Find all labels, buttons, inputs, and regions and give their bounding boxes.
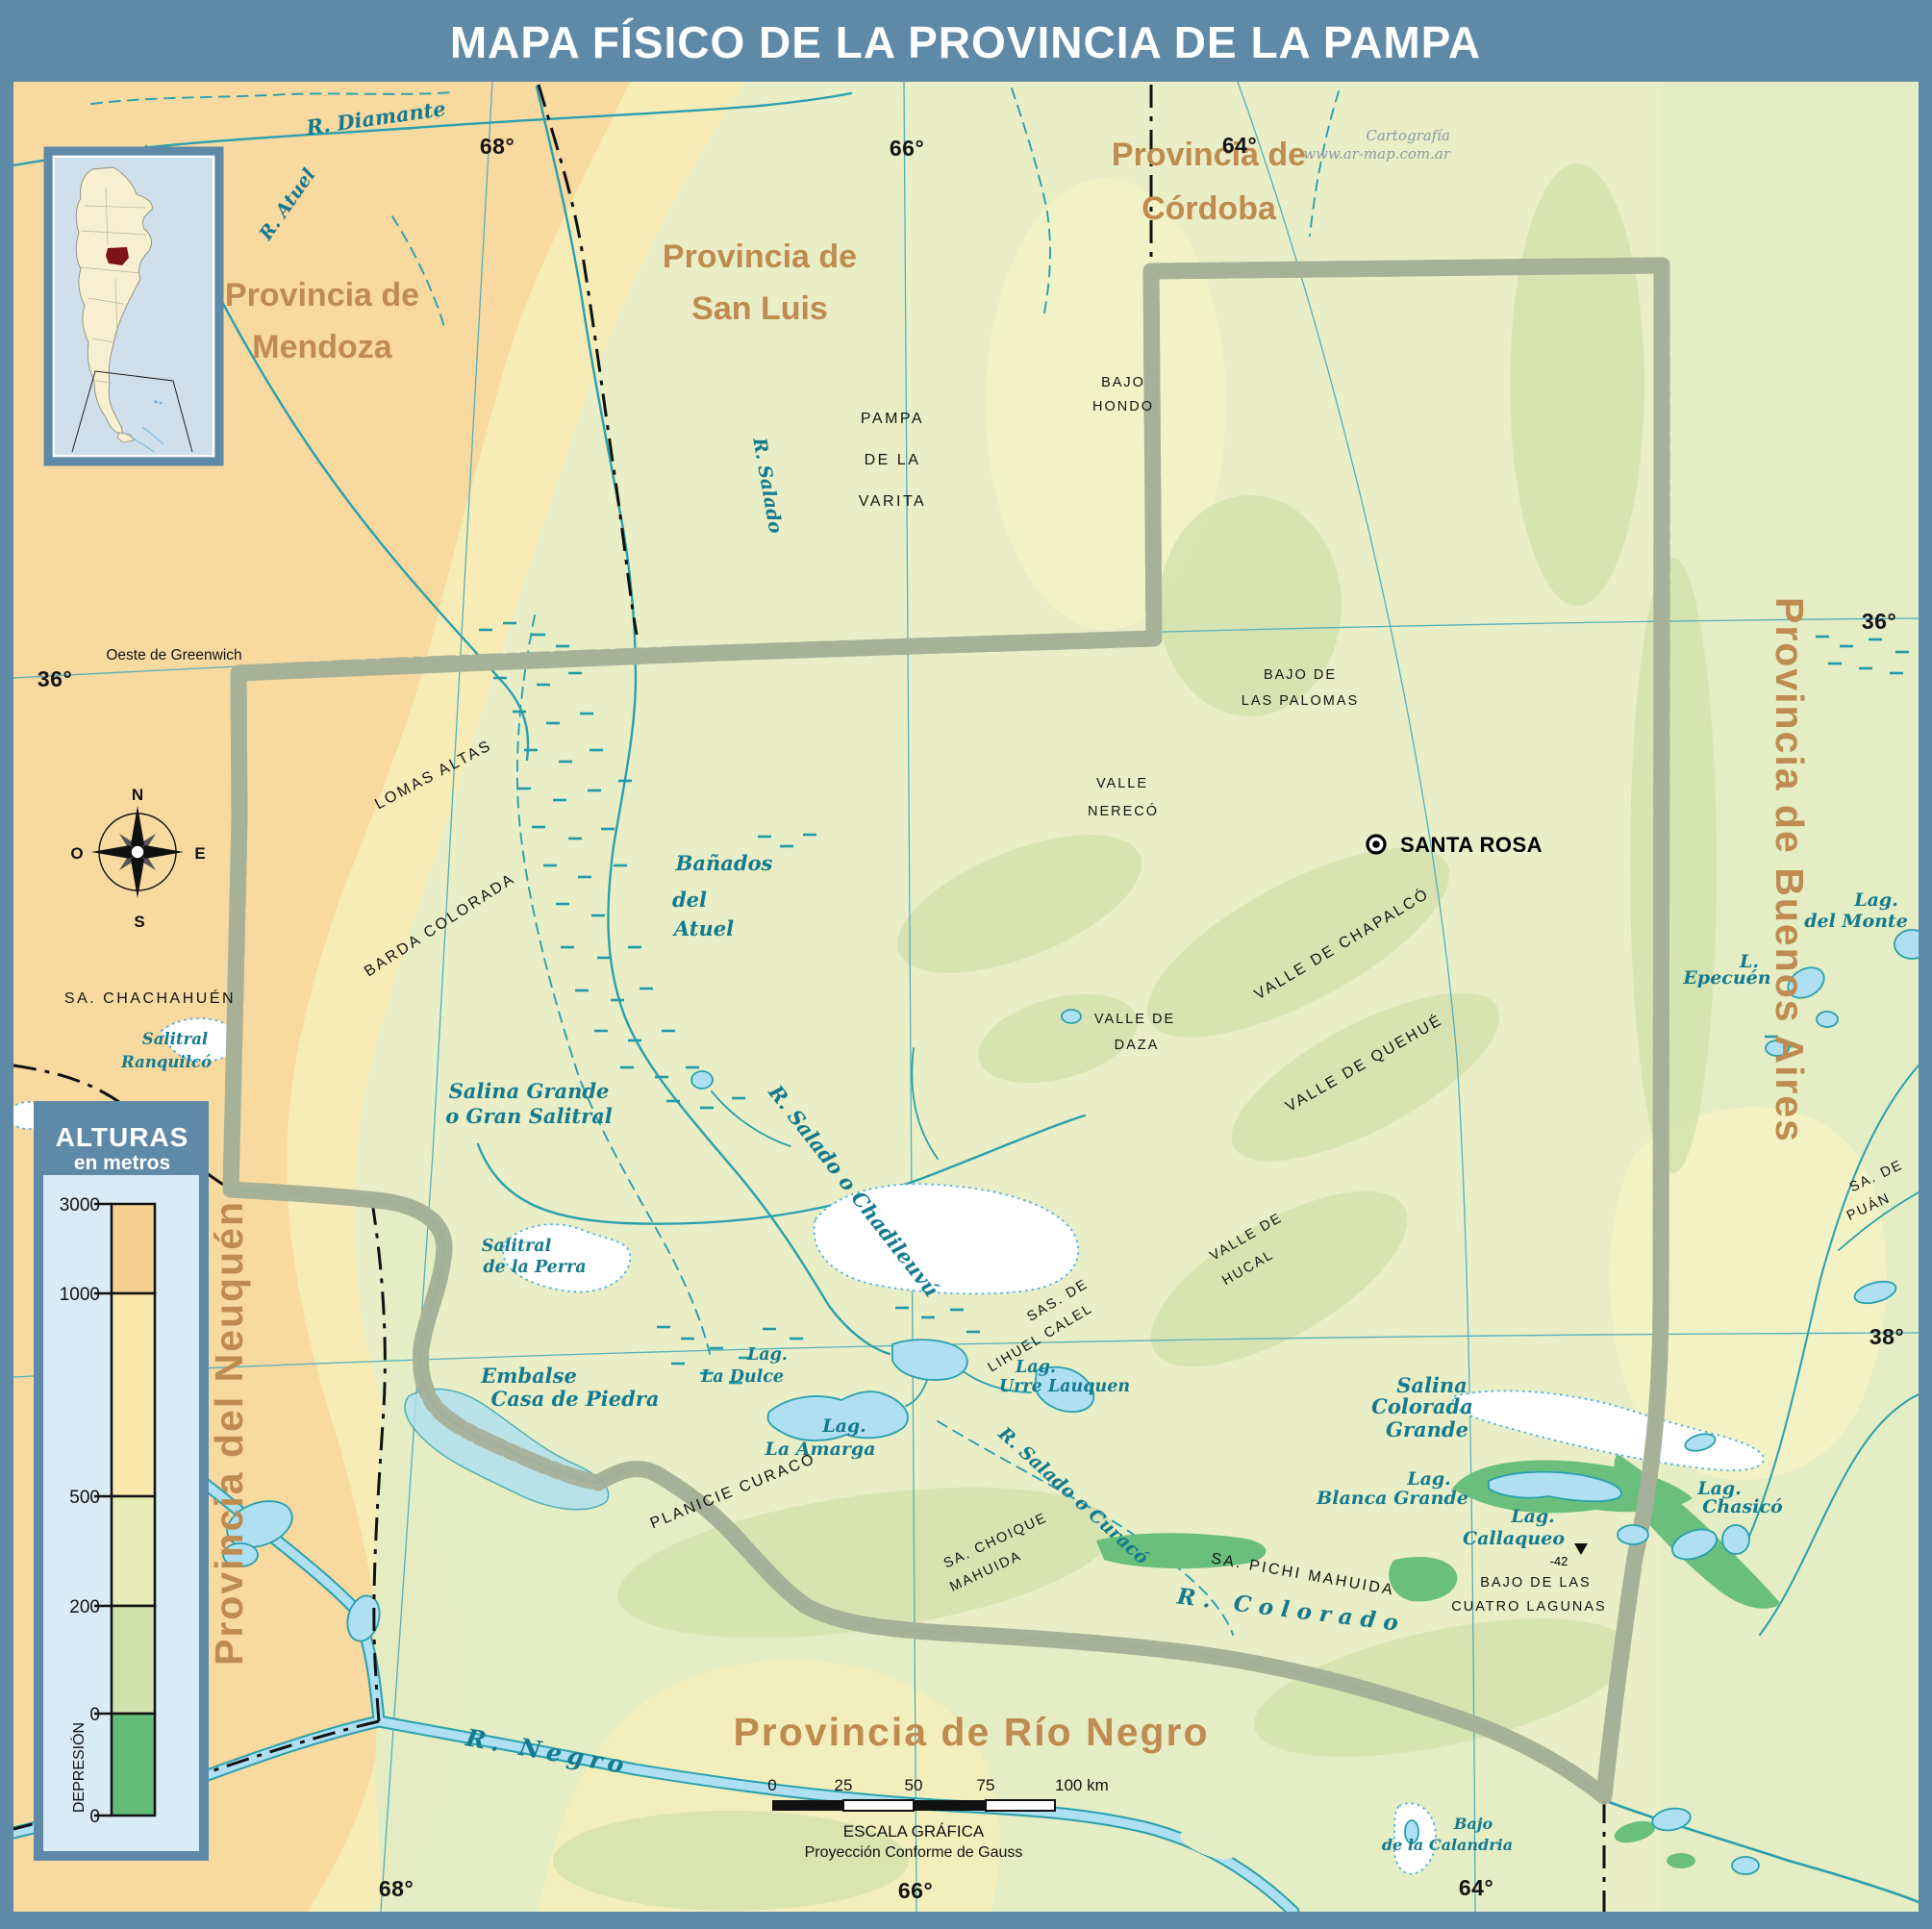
label-banados-2: del xyxy=(672,888,707,912)
label-embalse-1: Embalse xyxy=(480,1364,577,1388)
legend-tick-500: 500 xyxy=(69,1488,100,1508)
label-palomas-2: LAS PALOMAS xyxy=(1242,693,1359,709)
label-nereco-2: NERECÓ xyxy=(1088,803,1159,819)
map-title: MAPA FÍSICO DE LA PROVINCIA DE LA PAMPA xyxy=(450,17,1481,67)
inset-map xyxy=(48,151,219,462)
label-sanluis-2: San Luis xyxy=(691,290,828,327)
deg-66-top: 66° xyxy=(890,136,924,161)
label-nereco-1: VALLE xyxy=(1096,776,1148,791)
legend-tick-0a: 0 xyxy=(89,1705,100,1725)
scale-75: 75 xyxy=(977,1776,995,1794)
legend-tick-0b: 0 xyxy=(89,1807,100,1827)
label-calandria-1: Bajo xyxy=(1453,1815,1493,1833)
legend-tick-200: 200 xyxy=(69,1597,100,1617)
label-embalse-2: Casa de Piedra xyxy=(491,1387,660,1411)
deg-68-bottom: 68° xyxy=(379,1876,414,1901)
deg-66-bottom: 66° xyxy=(898,1878,933,1903)
label-monte-1: Lag. xyxy=(1853,889,1898,911)
label-calandria-2: de la Calandria xyxy=(1382,1836,1513,1854)
label-blanca-1: Lag. xyxy=(1406,1468,1451,1490)
label-chasico-2: Chasicó xyxy=(1702,1496,1783,1517)
deg-36-right: 36° xyxy=(1862,609,1896,634)
label-perra-1: Salitral xyxy=(482,1237,552,1256)
label-urre-1: Lag. xyxy=(1015,1358,1056,1377)
label-cordoba-2: Córdoba xyxy=(1142,190,1277,227)
label-salina-grande-2: o Gran Salitral xyxy=(445,1104,613,1128)
label-chachahuen: SA. CHACHAHUÉN xyxy=(64,989,236,1007)
label-amarga-1: Lag. xyxy=(821,1415,866,1437)
label-mendoza-1: Provincia de xyxy=(225,277,419,313)
label-blanca-2: Blanca Grande xyxy=(1316,1488,1468,1509)
lag-daza xyxy=(1062,1010,1081,1023)
compass-o: O xyxy=(70,844,83,863)
label-greenwich: Oeste de Greenwich xyxy=(106,647,241,664)
label-epecuen-2: Epecuén xyxy=(1682,967,1770,989)
label-scolorada-2: Colorada xyxy=(1371,1394,1473,1418)
label-bajo-hondo-1: BAJO xyxy=(1101,375,1145,390)
lag-chasico xyxy=(1722,1525,1749,1554)
label-neuquen: Provincia del Neuquén xyxy=(207,1200,251,1666)
label-depression-value: -42 xyxy=(1550,1554,1568,1568)
compass-s: S xyxy=(134,913,144,931)
label-callaqueo-2: Callaqueo xyxy=(1463,1528,1565,1549)
scale-25: 25 xyxy=(835,1776,853,1794)
legend-tick-1000: 1000 xyxy=(60,1285,100,1305)
label-scolorada-3: Grande xyxy=(1386,1417,1468,1441)
label-dulce-1: Lag. xyxy=(746,1345,788,1365)
deg-64-bottom: 64° xyxy=(1459,1875,1493,1900)
santa-rosa-marker xyxy=(1367,836,1385,853)
label-cordoba-1: Provincia de xyxy=(1112,137,1306,173)
scale-title: ESCALA GRÁFICA xyxy=(843,1822,985,1841)
label-rionegro: Provincia de Río Negro xyxy=(733,1710,1209,1754)
label-palomas-1: BAJO DE xyxy=(1264,667,1337,683)
map-page: MAPA FÍSICO DE LA PROVINCIA DE LA PAMPA … xyxy=(0,0,1932,1929)
scale-0: 0 xyxy=(767,1776,776,1794)
deg-64-top: 64° xyxy=(1222,133,1257,158)
label-pampa-varita-2: DE LA xyxy=(865,452,921,468)
deg-38-right: 38° xyxy=(1869,1324,1904,1349)
credit-line2: www.ar-map.com.ar xyxy=(1303,145,1451,163)
label-cuatro-lagunas-1: BAJO DE LAS xyxy=(1480,1575,1591,1591)
compass-n: N xyxy=(132,786,143,804)
label-daza-1: VALLE DE xyxy=(1094,1012,1175,1027)
scalebar xyxy=(772,1800,1055,1811)
scale-100: 100 km xyxy=(1055,1776,1109,1794)
lag-small-1 xyxy=(1618,1525,1648,1544)
label-cuatro-lagunas-2: CUATRO LAGUNAS xyxy=(1451,1599,1606,1615)
label-ranquilco-1: Salitral xyxy=(142,1030,208,1048)
map-canvas: MAPA FÍSICO DE LA PROVINCIA DE LA PAMPA … xyxy=(0,0,1932,1929)
label-monte-2: del Monte xyxy=(1804,911,1908,932)
deg-36-left: 36° xyxy=(38,666,72,691)
label-dulce-2: La Dulce xyxy=(700,1367,784,1387)
deg-68-top: 68° xyxy=(480,134,514,159)
label-ranquilco-2: Ranquilcó xyxy=(120,1053,212,1071)
label-amarga-2: La Amarga xyxy=(764,1439,875,1460)
label-perra-2: de la Perra xyxy=(483,1258,586,1277)
label-mendoza-2: Mendoza xyxy=(252,329,393,365)
legend xyxy=(38,1106,204,1856)
label-sanluis-1: Provincia de xyxy=(663,238,857,275)
legend-tick-3000: 3000 xyxy=(60,1195,100,1215)
label-callaqueo-1: Lag. xyxy=(1510,1506,1555,1527)
label-pampa-varita-3: VARITA xyxy=(859,493,926,510)
legend-title: ALTURAS xyxy=(56,1122,189,1152)
scale-50: 50 xyxy=(905,1776,923,1794)
label-daza-2: DAZA xyxy=(1115,1038,1160,1053)
label-banados-3: Atuel xyxy=(672,916,734,940)
label-pampa-varita-1: PAMPA xyxy=(861,411,924,427)
label-salina-grande-1: Salina Grande xyxy=(449,1079,610,1103)
credit-line1: Cartografía xyxy=(1366,127,1450,144)
label-banados-1: Bañados xyxy=(675,851,773,875)
label-buenosaires: Provincia de Buenos Aires xyxy=(1768,597,1812,1143)
label-urre-2: Urre Lauquen xyxy=(999,1377,1130,1396)
label-bajo-hondo-2: HONDO xyxy=(1092,399,1154,414)
legend-depression: DEPRESIÓN xyxy=(69,1722,88,1813)
scale-subtitle: Proyección Conforme de Gauss xyxy=(805,1844,1023,1861)
legend-subtitle: en metros xyxy=(74,1152,170,1174)
label-santa-rosa: SANTA ROSA xyxy=(1400,833,1543,857)
compass-e: E xyxy=(194,844,205,863)
